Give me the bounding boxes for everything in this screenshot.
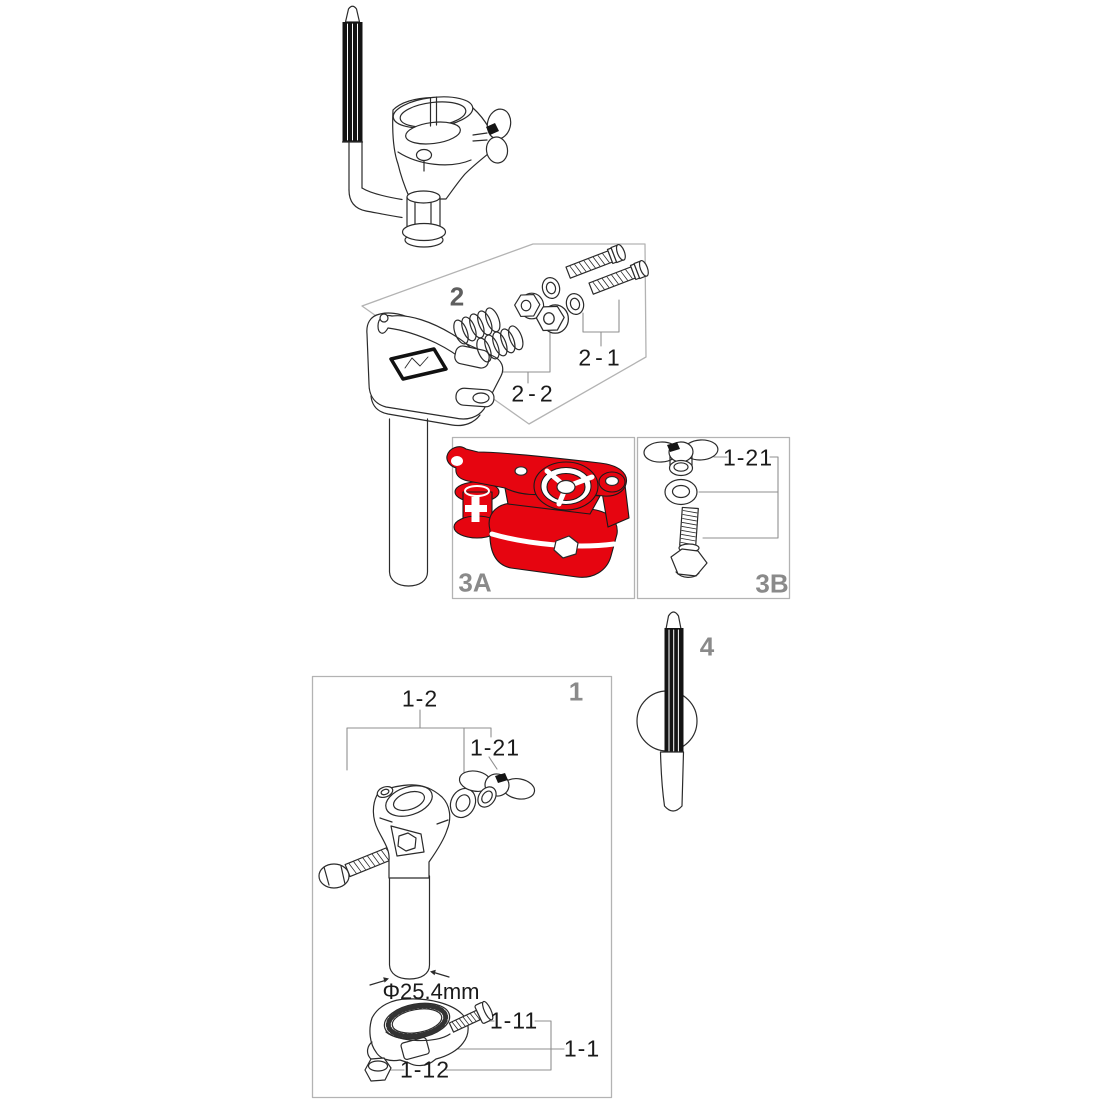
hex-socket xyxy=(398,833,416,851)
rod-4-tip xyxy=(666,612,681,629)
callout-2-2-label: 2-2 xyxy=(511,381,556,408)
flange-nut-2 xyxy=(536,305,568,333)
diameter-dimension-label: Φ25.4mm xyxy=(382,979,479,1005)
rod-grip xyxy=(343,22,363,142)
tube-1 xyxy=(390,876,430,979)
group-1-label: 1 xyxy=(569,677,583,708)
callout-1-12-label: 1-12 xyxy=(400,1057,450,1084)
group-3a-label: 3A xyxy=(458,568,491,599)
parts-diagram-page: 2 2-1 2-2 3A 3B 1-21 4 1 1-2 1-21 Φ25.4m… xyxy=(0,0,1100,1100)
clamp-body-1 xyxy=(373,780,449,878)
part-4-rod xyxy=(637,612,697,811)
bolt-1-side xyxy=(319,846,396,888)
callout-1-21-3b-label: 1-21 xyxy=(723,445,773,472)
rod-4-grip xyxy=(665,628,684,753)
callout-1-2-label: 1-2 xyxy=(402,686,438,713)
tube-2 xyxy=(390,419,428,586)
part-4-label: 4 xyxy=(700,632,714,663)
clamp-cup xyxy=(391,93,497,199)
group-3b-parts xyxy=(643,439,718,577)
rod-tip xyxy=(346,6,360,22)
nut-1-12 xyxy=(365,1058,391,1081)
diagram-artwork xyxy=(0,0,1100,1100)
group-2-label: 2 xyxy=(450,282,464,313)
top-assembly xyxy=(343,6,514,247)
bracket-2-1 xyxy=(583,300,619,346)
callout-1-21-label: 1-21 xyxy=(470,735,520,762)
callout-1-11-label: 1-11 xyxy=(490,1008,538,1035)
cam-knob xyxy=(417,150,432,161)
washer-3b xyxy=(665,480,697,505)
callout-2-1-label: 2-1 xyxy=(578,345,623,372)
washer-1 xyxy=(540,276,562,301)
group-3b-label: 3B xyxy=(755,569,788,600)
bolt-3b xyxy=(671,507,707,577)
tube-bore-3a xyxy=(534,462,598,510)
clamp-3a-red xyxy=(447,447,629,578)
rod-4-lower xyxy=(661,752,684,811)
clamp-stem xyxy=(403,191,446,247)
callout-1-1-label: 1-1 xyxy=(564,1036,600,1063)
